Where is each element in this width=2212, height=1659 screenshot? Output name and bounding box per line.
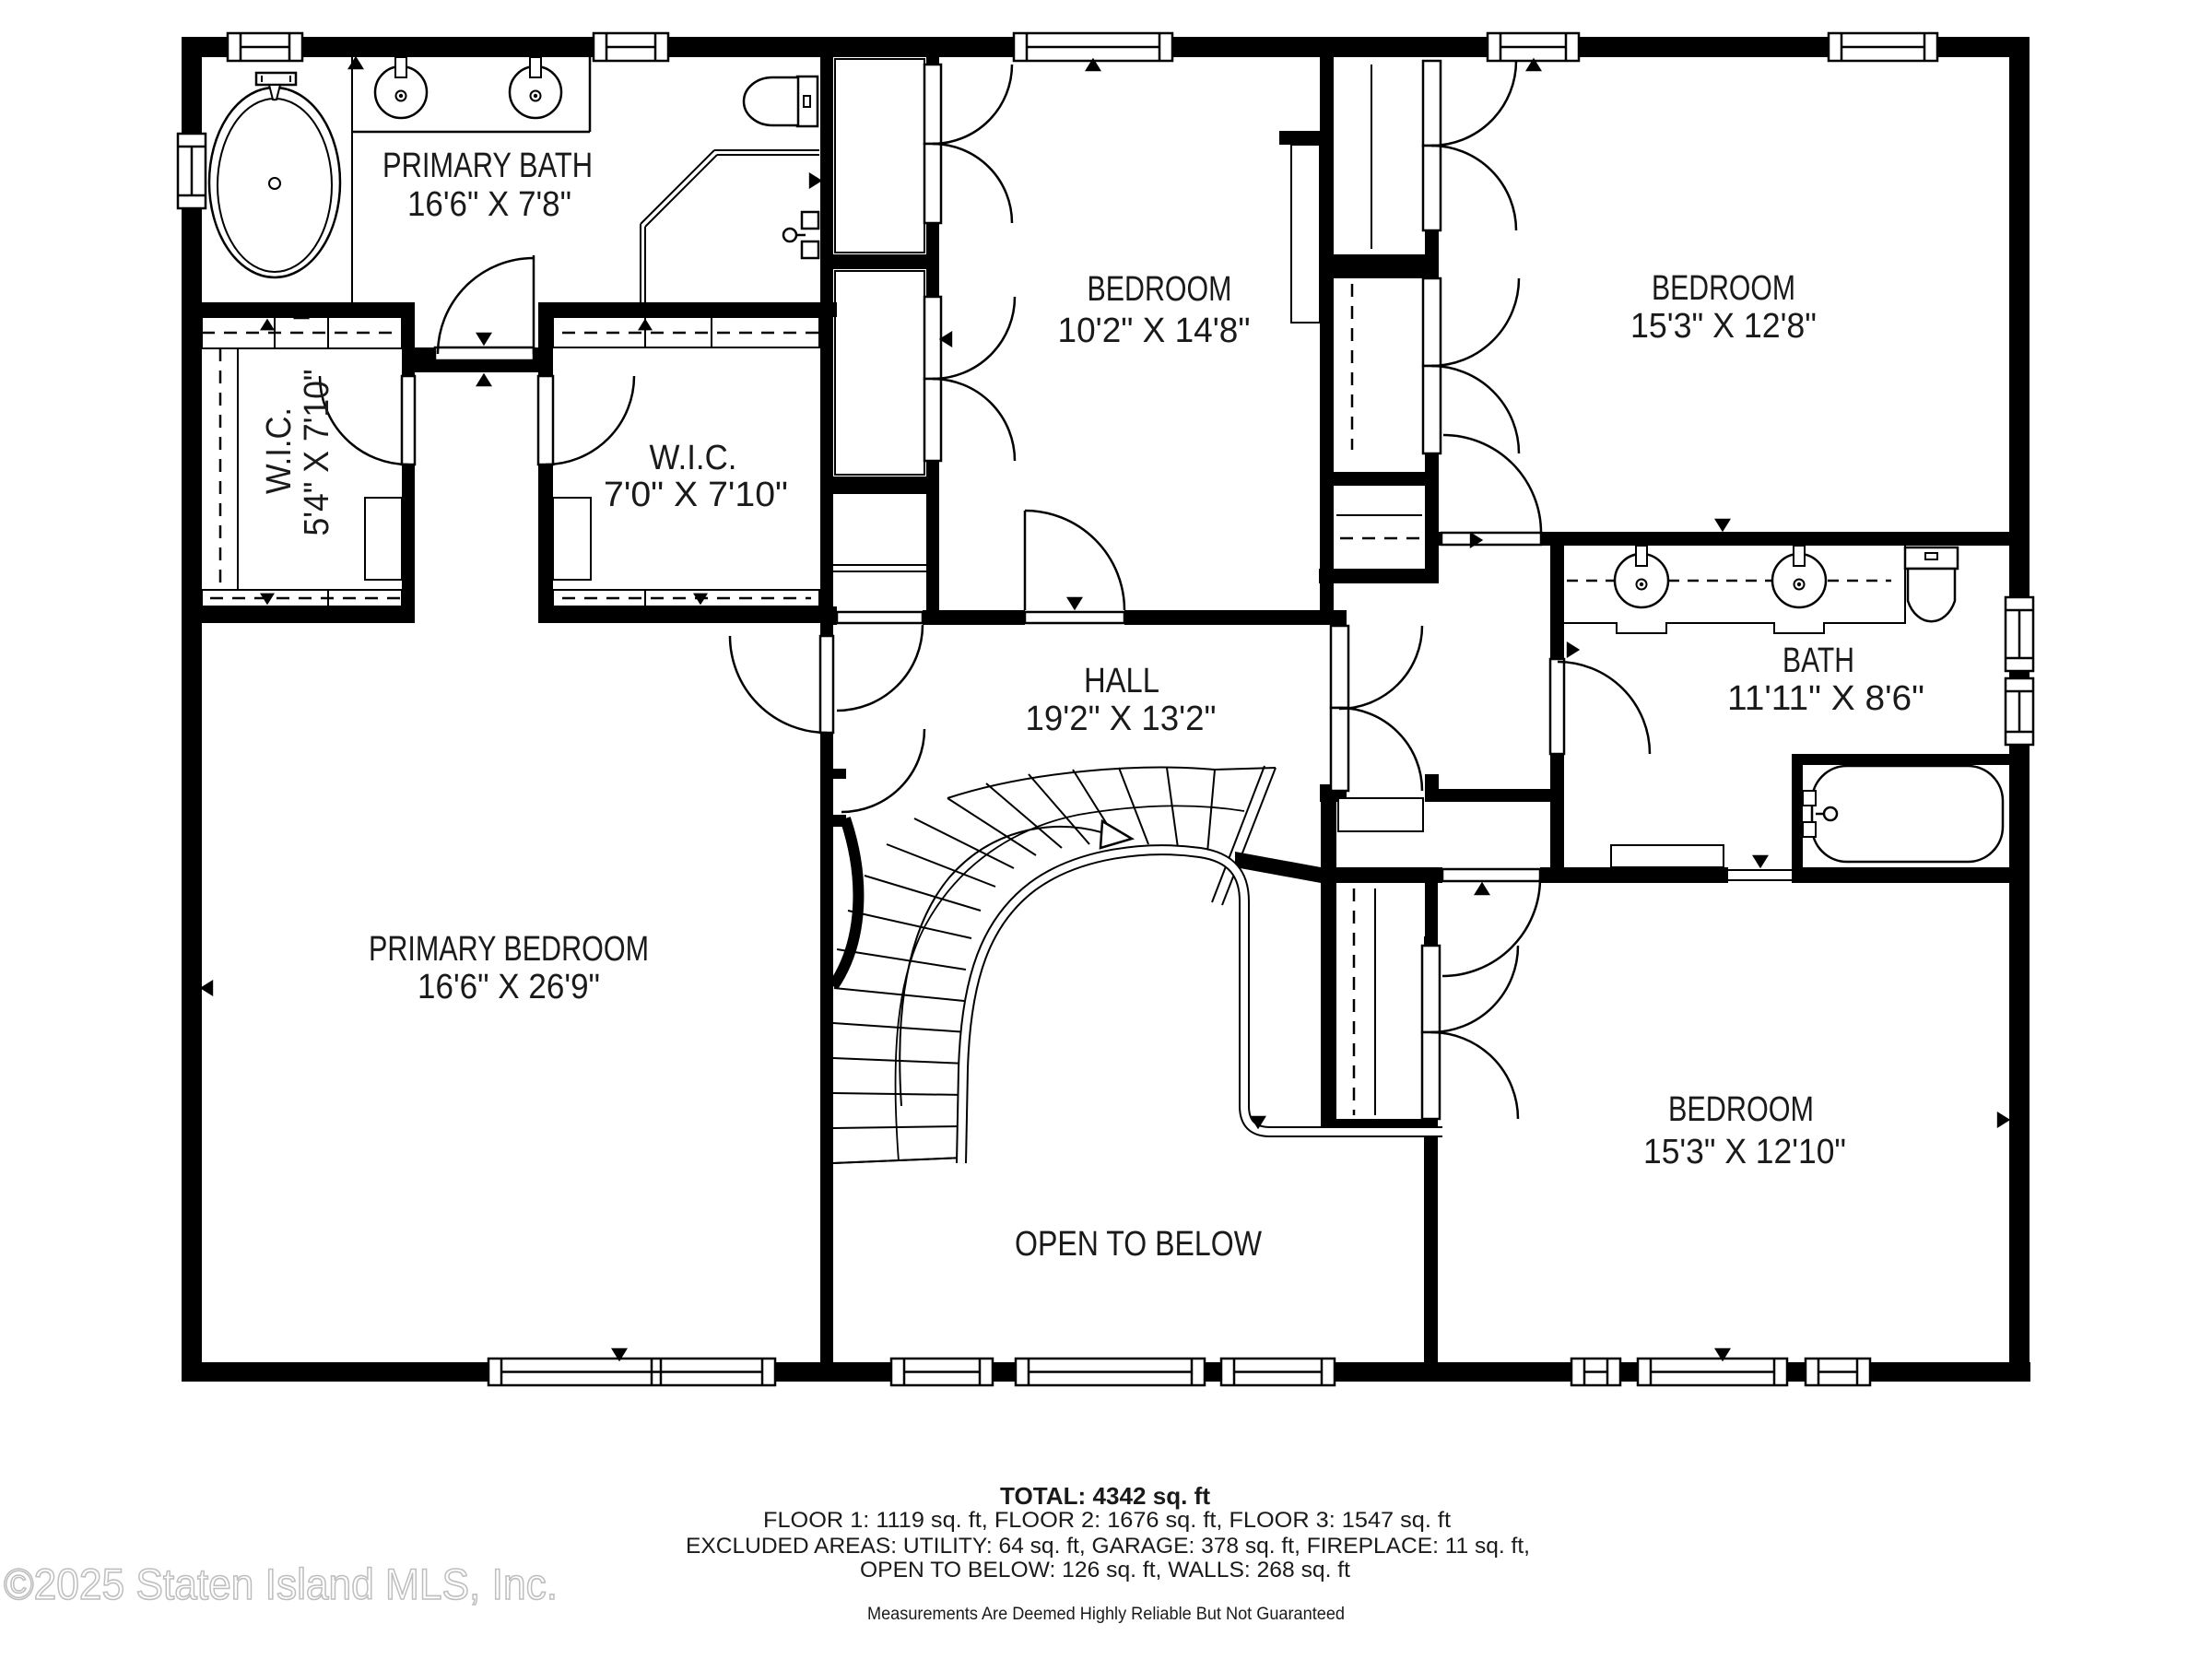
svg-text:©2025 Staten Island MLS, Inc.: ©2025 Staten Island MLS, Inc. (4, 1559, 558, 1608)
svg-text:16'6" X 26'9": 16'6" X 26'9" (418, 968, 600, 1006)
svg-text:TOTAL: 4342 sq. ft: TOTAL: 4342 sq. ft (1000, 1482, 1210, 1510)
svg-text:HALL: HALL (1084, 662, 1159, 700)
svg-text:OPEN TO BELOW: 126 sq. ft, WAL: OPEN TO BELOW: 126 sq. ft, WALLS: 268 sq… (860, 1558, 1350, 1583)
svg-text:BEDROOM: BEDROOM (1652, 269, 1795, 308)
svg-text:PRIMARY BEDROOM: PRIMARY BEDROOM (369, 930, 649, 969)
svg-text:W.I.C.: W.I.C. (650, 439, 737, 477)
svg-text:BEDROOM: BEDROOM (1668, 1090, 1814, 1129)
svg-text:PRIMARY BATH: PRIMARY BATH (382, 147, 593, 185)
svg-text:EXCLUDED AREAS: UTILITY: 64 sq: EXCLUDED AREAS: UTILITY: 64 sq. ft, GARA… (686, 1534, 1530, 1559)
svg-text:BATH: BATH (1783, 641, 1854, 680)
svg-text:FLOOR 1: 1119 sq. ft, FLOOR 2:: FLOOR 1: 1119 sq. ft, FLOOR 2: 1676 sq. … (763, 1508, 1451, 1533)
svg-text:7'0" X 7'10": 7'0" X 7'10" (604, 476, 788, 514)
svg-text:W.I.C.: W.I.C. (260, 407, 299, 494)
svg-text:OPEN TO BELOW: OPEN TO BELOW (1015, 1225, 1262, 1264)
svg-text:19'2" X 13'2": 19'2" X 13'2" (1026, 700, 1217, 738)
svg-text:15'3" X 12'10": 15'3" X 12'10" (1643, 1133, 1846, 1171)
svg-text:10'2" X 14'8": 10'2" X 14'8" (1058, 312, 1251, 350)
svg-text:5'4" X 7'10": 5'4" X 7'10" (298, 370, 336, 536)
svg-text:BEDROOM: BEDROOM (1088, 270, 1232, 309)
svg-text:15'3" X 12'8": 15'3" X 12'8" (1630, 307, 1817, 346)
svg-text:Measurements Are Deemed Highly: Measurements Are Deemed Highly Reliable … (867, 1605, 1345, 1624)
svg-text:11'11" X 8'6": 11'11" X 8'6" (1727, 679, 1924, 718)
svg-text:16'6" X 7'8": 16'6" X 7'8" (407, 185, 571, 224)
